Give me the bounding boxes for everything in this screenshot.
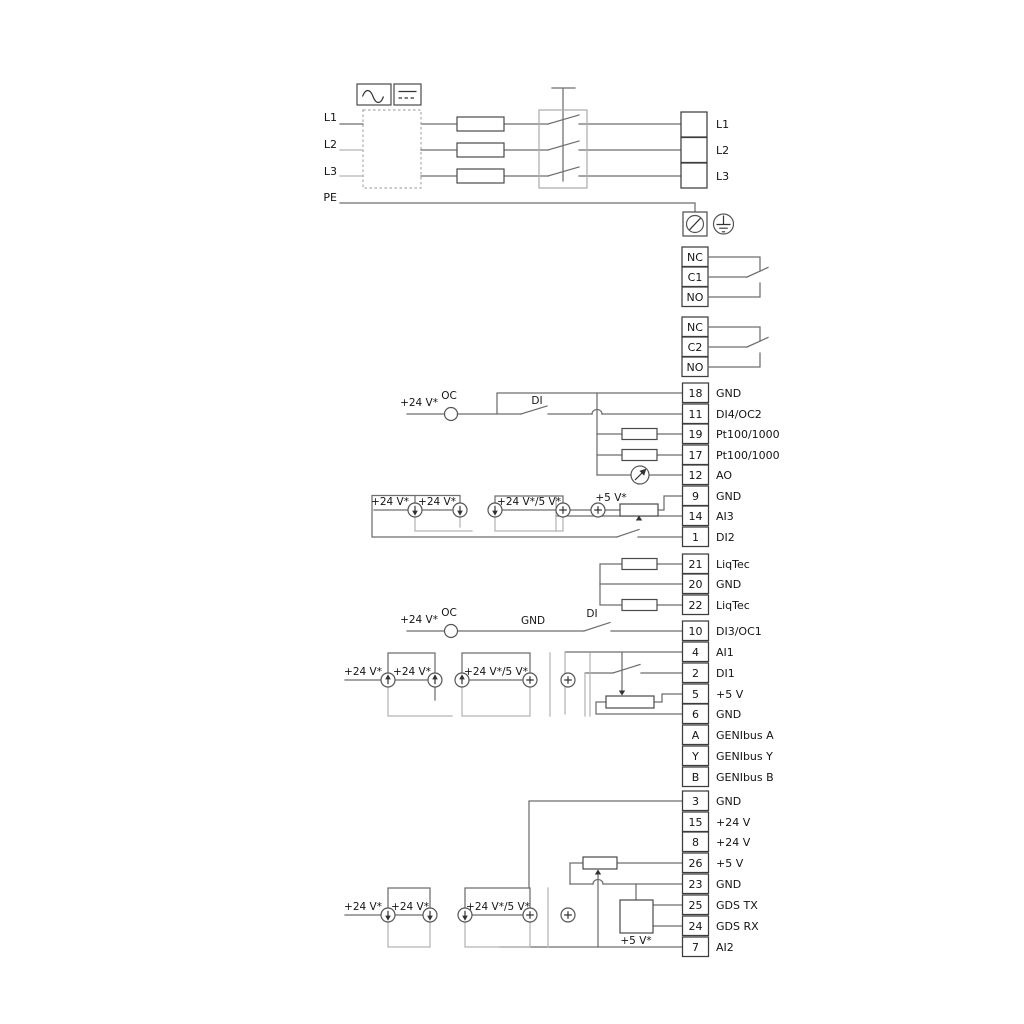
- open-collector-icon: [445, 408, 458, 421]
- v24-label: +24 V*: [391, 901, 429, 913]
- terminal-label: NO: [687, 361, 704, 374]
- open-collector-icon: [445, 625, 458, 638]
- terminal-label: GENIbus A: [716, 729, 774, 742]
- terminal-number: 15: [689, 816, 703, 829]
- strip1-terminals: 18 GND 11 DI4/OC2 19 Pt100/1000 17 Pt100…: [683, 383, 780, 547]
- relay-contact-icon: [708, 257, 768, 297]
- line-label-l2: L2: [324, 138, 337, 151]
- pt100-resistor-icon: [622, 450, 657, 461]
- terminal-number: B: [692, 771, 700, 784]
- terminal-label: GENIbus B: [716, 771, 774, 784]
- strip3-terminals: 3 GND 15 +24 V 8 +24 V 26 +5 V 23 GND 25…: [683, 791, 760, 957]
- v5-label: +5 V*: [595, 492, 626, 504]
- terminal-label: +24 V: [716, 836, 751, 849]
- terminal-number: 11: [689, 408, 703, 421]
- terminal-label: DI1: [716, 667, 735, 680]
- v24-5v-label: +24 V*/5 V*: [497, 496, 561, 508]
- v24-5v-label: +24 V*/5 V*: [464, 666, 528, 678]
- terminal-strip-1: +24 V* OC DI +24 V* +24 V* +24 V*/5 V* +…: [371, 383, 780, 547]
- terminal-number: 14: [689, 510, 703, 523]
- terminal-label: DI3/OC1: [716, 625, 762, 638]
- terminal-number: 8: [692, 836, 699, 849]
- terminal-label: DI2: [716, 531, 735, 544]
- terminal-label: DI4/OC2: [716, 408, 762, 421]
- pt100-resistor-icon: [622, 429, 657, 440]
- terminal-strip-3: +24 V* +24 V* +24 V*/5 V* +5 V* 3 GND 15…: [344, 791, 759, 957]
- fuse-icon: [457, 143, 504, 157]
- terminal-label: NO: [687, 291, 704, 304]
- gds-sensor-box: [620, 900, 653, 933]
- v24-label: +24 V*: [400, 614, 438, 626]
- dc-symbol-icon: [394, 84, 421, 105]
- terminal-label: C1: [688, 271, 703, 284]
- v24-label: +24 V*: [344, 666, 382, 678]
- line-label-pe: PE: [323, 191, 337, 204]
- terminal-label: +5 V: [716, 688, 744, 701]
- terminal-label: GND: [716, 490, 741, 503]
- v24-label: +24 V*: [344, 901, 382, 913]
- terminal-cell: [681, 112, 707, 137]
- terminal-label: GDS TX: [716, 899, 758, 912]
- di-label: DI: [531, 395, 542, 407]
- terminal-strip-2: +24 V* OC GND DI +24 V* +24 V* +24 V*/5 …: [344, 607, 774, 787]
- di-label: DI: [586, 608, 597, 620]
- terminal-label: L1: [716, 118, 729, 131]
- terminal-label: AI3: [716, 510, 734, 523]
- ac-symbol-icon: [357, 84, 391, 105]
- terminal-cell: [681, 163, 707, 188]
- relay2-block: NC C2 NO: [682, 317, 768, 377]
- fuse-icon: [457, 117, 504, 131]
- voltage-source-icon: [561, 673, 575, 687]
- v24-label: +24 V*: [400, 397, 438, 409]
- oc-label: OC: [441, 607, 457, 619]
- potentiometer-icon: [620, 504, 658, 521]
- relay1-block: NC C1 NO: [682, 247, 768, 307]
- terminal-label: L2: [716, 144, 729, 157]
- terminal-number: 10: [689, 625, 703, 638]
- terminal-number: 5: [692, 688, 699, 701]
- terminal-cell: [681, 138, 707, 163]
- terminal-number: 18: [689, 387, 703, 400]
- terminal-label: GND: [716, 708, 741, 721]
- wiring-diagram-page: L1 L2 L3 PE: [0, 0, 1024, 1024]
- terminal-label: GDS RX: [716, 920, 759, 933]
- emc-filter-box: [363, 110, 421, 188]
- terminal-label: GND: [716, 878, 741, 891]
- ground-icon: [714, 214, 734, 234]
- strip2-terminals: 10 DI3/OC1 4 AI1 2 DI1 5 +5 V 6 GND A GE…: [683, 621, 775, 787]
- terminal-label: GENIbus Y: [716, 750, 773, 763]
- terminal-number: 1: [692, 531, 699, 544]
- analog-meter-icon: [631, 466, 649, 484]
- terminal-number: 21: [689, 558, 703, 571]
- v5-label: +5 V*: [620, 935, 651, 947]
- wiring-diagram-canvas: L1 L2 L3 PE: [0, 0, 1024, 1024]
- liqtec-sensor-resistor-icon: [622, 600, 657, 611]
- potentiometer-icon: [583, 857, 617, 869]
- terminal-number: 3: [692, 795, 699, 808]
- power-wires: [340, 88, 695, 212]
- v24-label: +24 V*: [418, 496, 456, 508]
- liqtec-wires: [600, 564, 683, 605]
- mains-terminal-block: L1 L2 L3: [681, 112, 729, 188]
- terminal-label: L3: [716, 170, 729, 183]
- fuse-icon: [457, 169, 504, 183]
- terminal-number: 4: [692, 646, 699, 659]
- liqtec-sensor-resistor-icon: [622, 559, 657, 570]
- terminal-number: 25: [689, 899, 703, 912]
- terminal-number: 6: [692, 708, 699, 721]
- terminal-number: 9: [692, 490, 699, 503]
- terminal-label: AO: [716, 469, 732, 482]
- voltage-source-icon: [561, 908, 575, 922]
- terminal-label: LiqTec: [716, 599, 750, 612]
- terminal-label: AI1: [716, 646, 734, 659]
- terminal-label: +24 V: [716, 816, 751, 829]
- terminal-label: Pt100/1000: [716, 449, 780, 462]
- v24-label: +24 V*: [393, 666, 431, 678]
- terminal-number: 7: [692, 941, 699, 954]
- relay-contact-icon: [708, 327, 768, 367]
- oc-label: OC: [441, 390, 457, 402]
- v24-label: +24 V*: [371, 496, 409, 508]
- terminal-label: GND: [716, 387, 741, 400]
- terminal-number: 23: [689, 878, 703, 891]
- power-input-section: L1 L2 L3 PE: [323, 84, 733, 236]
- terminal-number: 24: [689, 920, 703, 933]
- terminal-number: 12: [689, 469, 703, 482]
- terminal-number: Y: [691, 750, 699, 763]
- terminal-label: GND: [716, 578, 741, 591]
- terminal-number: 17: [689, 449, 703, 462]
- terminal-label: NC: [687, 251, 703, 264]
- terminal-number: 2: [692, 667, 699, 680]
- voltage-source-icon: [591, 503, 605, 517]
- terminal-label: NC: [687, 321, 703, 334]
- terminal-label: C2: [688, 341, 703, 354]
- liqtec-strip: 21 LiqTec 20 GND 22 LiqTec: [600, 554, 750, 615]
- line-label-l3: L3: [324, 165, 337, 178]
- gnd-label: GND: [521, 615, 545, 627]
- terminal-number: A: [692, 729, 700, 742]
- screw-terminal-icon: [683, 212, 707, 236]
- terminal-number: 19: [689, 428, 703, 441]
- terminal-label: LiqTec: [716, 558, 750, 571]
- terminal-label: GND: [716, 795, 741, 808]
- v24-5v-label: +24 V*/5 V*: [466, 901, 530, 913]
- terminal-label: +5 V: [716, 857, 744, 870]
- terminal-number: 26: [689, 857, 703, 870]
- terminal-number: 20: [689, 578, 703, 591]
- terminal-label: Pt100/1000: [716, 428, 780, 441]
- terminal-number: 22: [689, 599, 703, 612]
- terminal-label: AI2: [716, 941, 734, 954]
- potentiometer-icon: [606, 696, 654, 708]
- line-label-l1: L1: [324, 111, 337, 124]
